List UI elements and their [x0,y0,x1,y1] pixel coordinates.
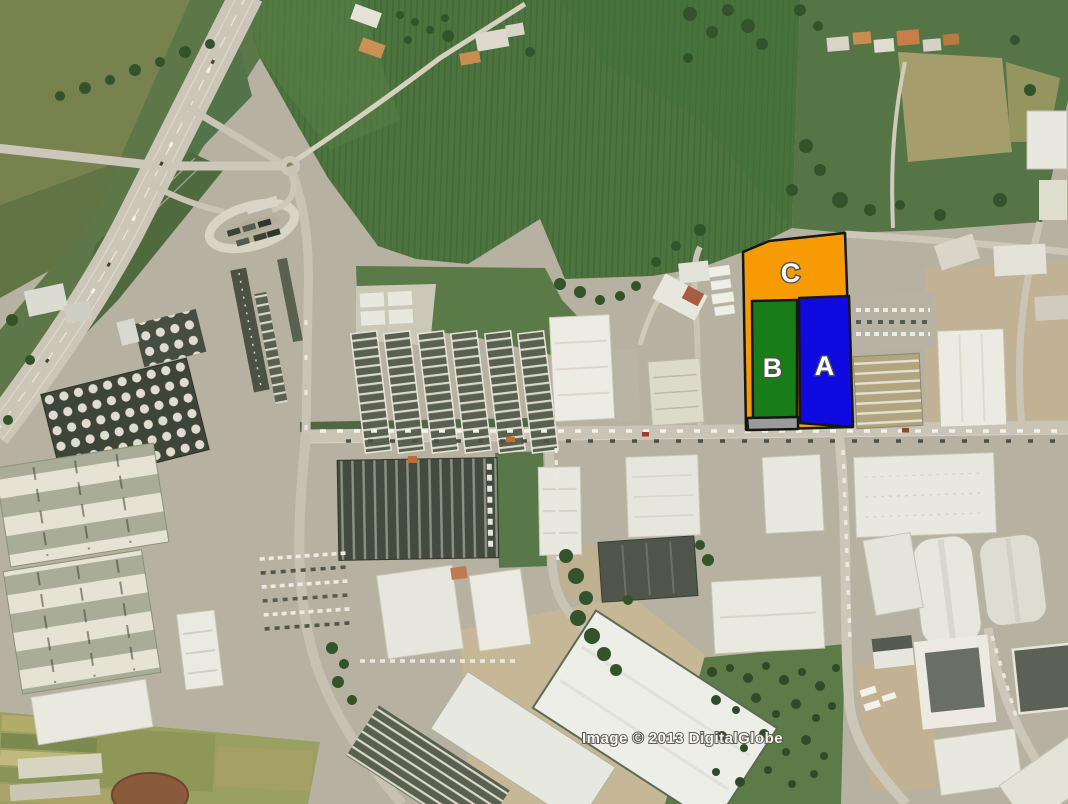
parcel-label-A: A [815,351,836,381]
striped-warehouse [853,353,923,428]
factory-building [3,550,161,694]
satellite-map: CBA Image © 2013 DigitalGlobe [0,0,1068,804]
attribution-watermark: Image © 2013 DigitalGlobe [582,730,783,747]
barrel-roof-warehouse [911,534,984,649]
dark-warehouse [337,458,499,561]
parcel-access-strip[interactable] [747,417,798,430]
parcel-label-C: C [781,258,802,288]
white-warehouse [549,315,614,422]
parcel-overlays: CBA [743,233,853,430]
map-viewport: CBA Image © 2013 DigitalGlobe [0,0,1068,804]
parcel-label-B: B [763,353,784,383]
